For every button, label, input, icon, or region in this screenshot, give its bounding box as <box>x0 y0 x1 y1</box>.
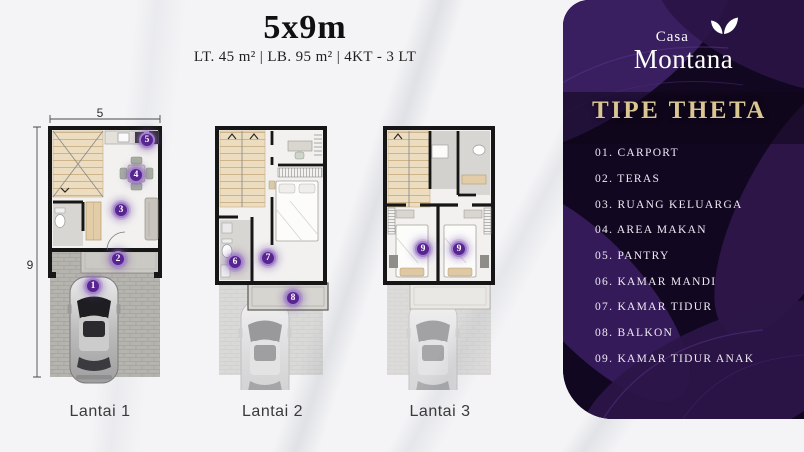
stairs-icon <box>388 131 430 207</box>
kitchen-counter <box>105 131 158 144</box>
legend-item: 02. TERAS <box>595 174 804 186</box>
header: 5x9m LT. 45 m² | LB. 95 m² | 4KT - 3 LT <box>0 0 610 66</box>
legend-item: 05. PANTRY <box>595 251 804 263</box>
floor-plan-lantai-3: 99 <box>380 105 500 390</box>
legend-item: 06. KAMAR MANDI <box>595 277 804 289</box>
legend-item: 03. RUANG KELUARGA <box>595 200 804 212</box>
floor-plan-lantai-1: 12345 5 9 <box>25 105 175 390</box>
balcony-deck <box>248 283 328 310</box>
floor-plan-lantai-2: 678 <box>210 105 335 390</box>
floor-label-lantai-1: Lantai 1 <box>25 403 175 421</box>
stairs-icon <box>53 131 103 197</box>
legend-list: 01. CARPORT02. TERAS03. RUANG KELUARGA04… <box>595 148 804 365</box>
sofa <box>145 198 158 240</box>
bathroom <box>458 131 490 195</box>
floor-label-lantai-2: Lantai 2 <box>210 403 335 421</box>
toilet-icon <box>473 145 485 155</box>
type-title: TIPE THETA <box>592 97 804 125</box>
legend-item: 01. CARPORT <box>595 148 804 160</box>
flyer-canvas: 5x9m LT. 45 m² | LB. 95 m² | 4KT - 3 LT <box>0 0 804 452</box>
legend-item: 04. AREA MAKAN <box>595 225 804 237</box>
car-top-view <box>68 277 121 383</box>
bed <box>269 181 318 241</box>
bathroom <box>217 217 252 283</box>
legend-item: 08. BALKON <box>595 328 804 340</box>
page-title: 5x9m <box>0 9 610 47</box>
toilet-icon <box>222 245 232 258</box>
dimension-width-label: 5 <box>90 106 110 120</box>
toilet-icon <box>55 215 65 228</box>
legend-item: 09. KAMAR TIDUR ANAK <box>595 354 804 366</box>
balcony-roof <box>410 283 490 309</box>
brand-panel: Casa Montana TIPE THETA 01. CARPORT02. T… <box>563 0 804 419</box>
floor-plan-2-drawing <box>210 105 335 390</box>
spec-subtitle: LT. 45 m² | LB. 95 m² | 4KT - 3 LT <box>0 49 610 66</box>
dimension-height-label: 9 <box>24 258 36 272</box>
legend-item: 07. KAMAR TIDUR <box>595 302 804 314</box>
leaf-icon <box>709 17 739 35</box>
brand-logo: Casa Montana <box>634 30 733 73</box>
void-area <box>430 131 458 189</box>
floor-plan-1-drawing <box>25 105 175 390</box>
open-wardrobe <box>278 168 322 177</box>
floor-label-lantai-3: Lantai 3 <box>380 403 500 421</box>
brand-montana-text: Montana <box>634 45 733 73</box>
floor-plan-3-drawing <box>380 105 500 390</box>
stairs-icon <box>220 131 265 207</box>
bathroom <box>53 202 83 246</box>
wardrobe <box>86 202 101 240</box>
